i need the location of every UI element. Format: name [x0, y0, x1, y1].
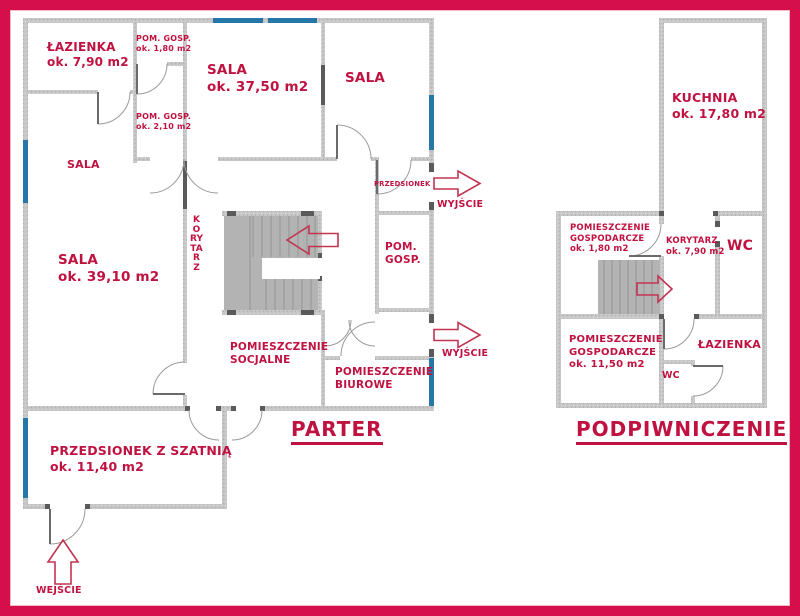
room-label-biurowe: POMIESZCZENIE BIUROWE: [335, 366, 433, 392]
room-label-sala-prawa: SALA: [345, 70, 385, 86]
entrance-label: WEJŚCIE: [36, 585, 82, 596]
entrance-arrow-icon: [48, 540, 78, 584]
room-label-pom-gosp-3: POM. GOSP.: [385, 241, 421, 267]
podpiwniczenie-stairs: [598, 260, 660, 314]
room-label-lazienka: ŁAZIENKA ok. 7,90 m2: [47, 40, 129, 70]
room-label-przedsionek: PRZEDSIONEK: [374, 180, 430, 188]
room-label-sala-duza: SALA ok. 37,50 m2: [207, 62, 308, 96]
exit-arrow-top-icon: [434, 171, 480, 196]
room-label-sala-3910: SALA ok. 39,10 m2: [58, 252, 159, 286]
room-label-sala-lewa: SALA: [67, 158, 100, 171]
room-label-socjalne: POMIESZCZENIE SOCJALNE: [230, 341, 328, 367]
room-label-korytarz-podpiwniczenie: KORYTARZ ok. 7,90 m2: [666, 236, 725, 257]
room-label-wc-gorne: WC: [727, 238, 753, 254]
floor-plan-page: ŁAZIENKA ok. 7,90 m2 POM. GOSP. ok. 1,80…: [0, 0, 800, 616]
parter-stairs: [224, 216, 320, 310]
floor-title-parter: PARTER: [291, 417, 383, 445]
exit-label-top: WYJŚCIE: [437, 199, 483, 210]
exit-arrow-bottom-icon: [434, 323, 480, 348]
room-label-pom-gosp-2: POM. GOSP. ok. 2,10 m2: [136, 112, 191, 132]
floor-title-podpiwniczenie: PODPIWNICZENIE: [576, 417, 787, 445]
room-label-wc-dolne: WC: [662, 370, 680, 381]
room-label-pom-gosp-1: POM. GOSP. ok. 1,80 m2: [136, 34, 191, 54]
room-label-kuchnia: KUCHNIA ok. 17,80 m2: [672, 90, 766, 122]
exit-label-bottom: WYJŚCIE: [442, 348, 488, 359]
room-label-gospodarcze-duze: POMIESZCZENIE GOSPODARCZE ok. 11,50 m2: [569, 334, 663, 372]
room-label-korytarz: KORYTARZ: [190, 216, 203, 274]
room-label-gospodarcze-male: POMIESZCZENIE GOSPODARCZE ok. 1,80 m2: [570, 223, 650, 255]
room-label-lazienka-podpiwniczenie: ŁAZIENKA: [698, 338, 761, 351]
room-label-szatnia: PRZEDSIONEK Z SZATNIĄ ok. 11,40 m2: [50, 443, 232, 475]
